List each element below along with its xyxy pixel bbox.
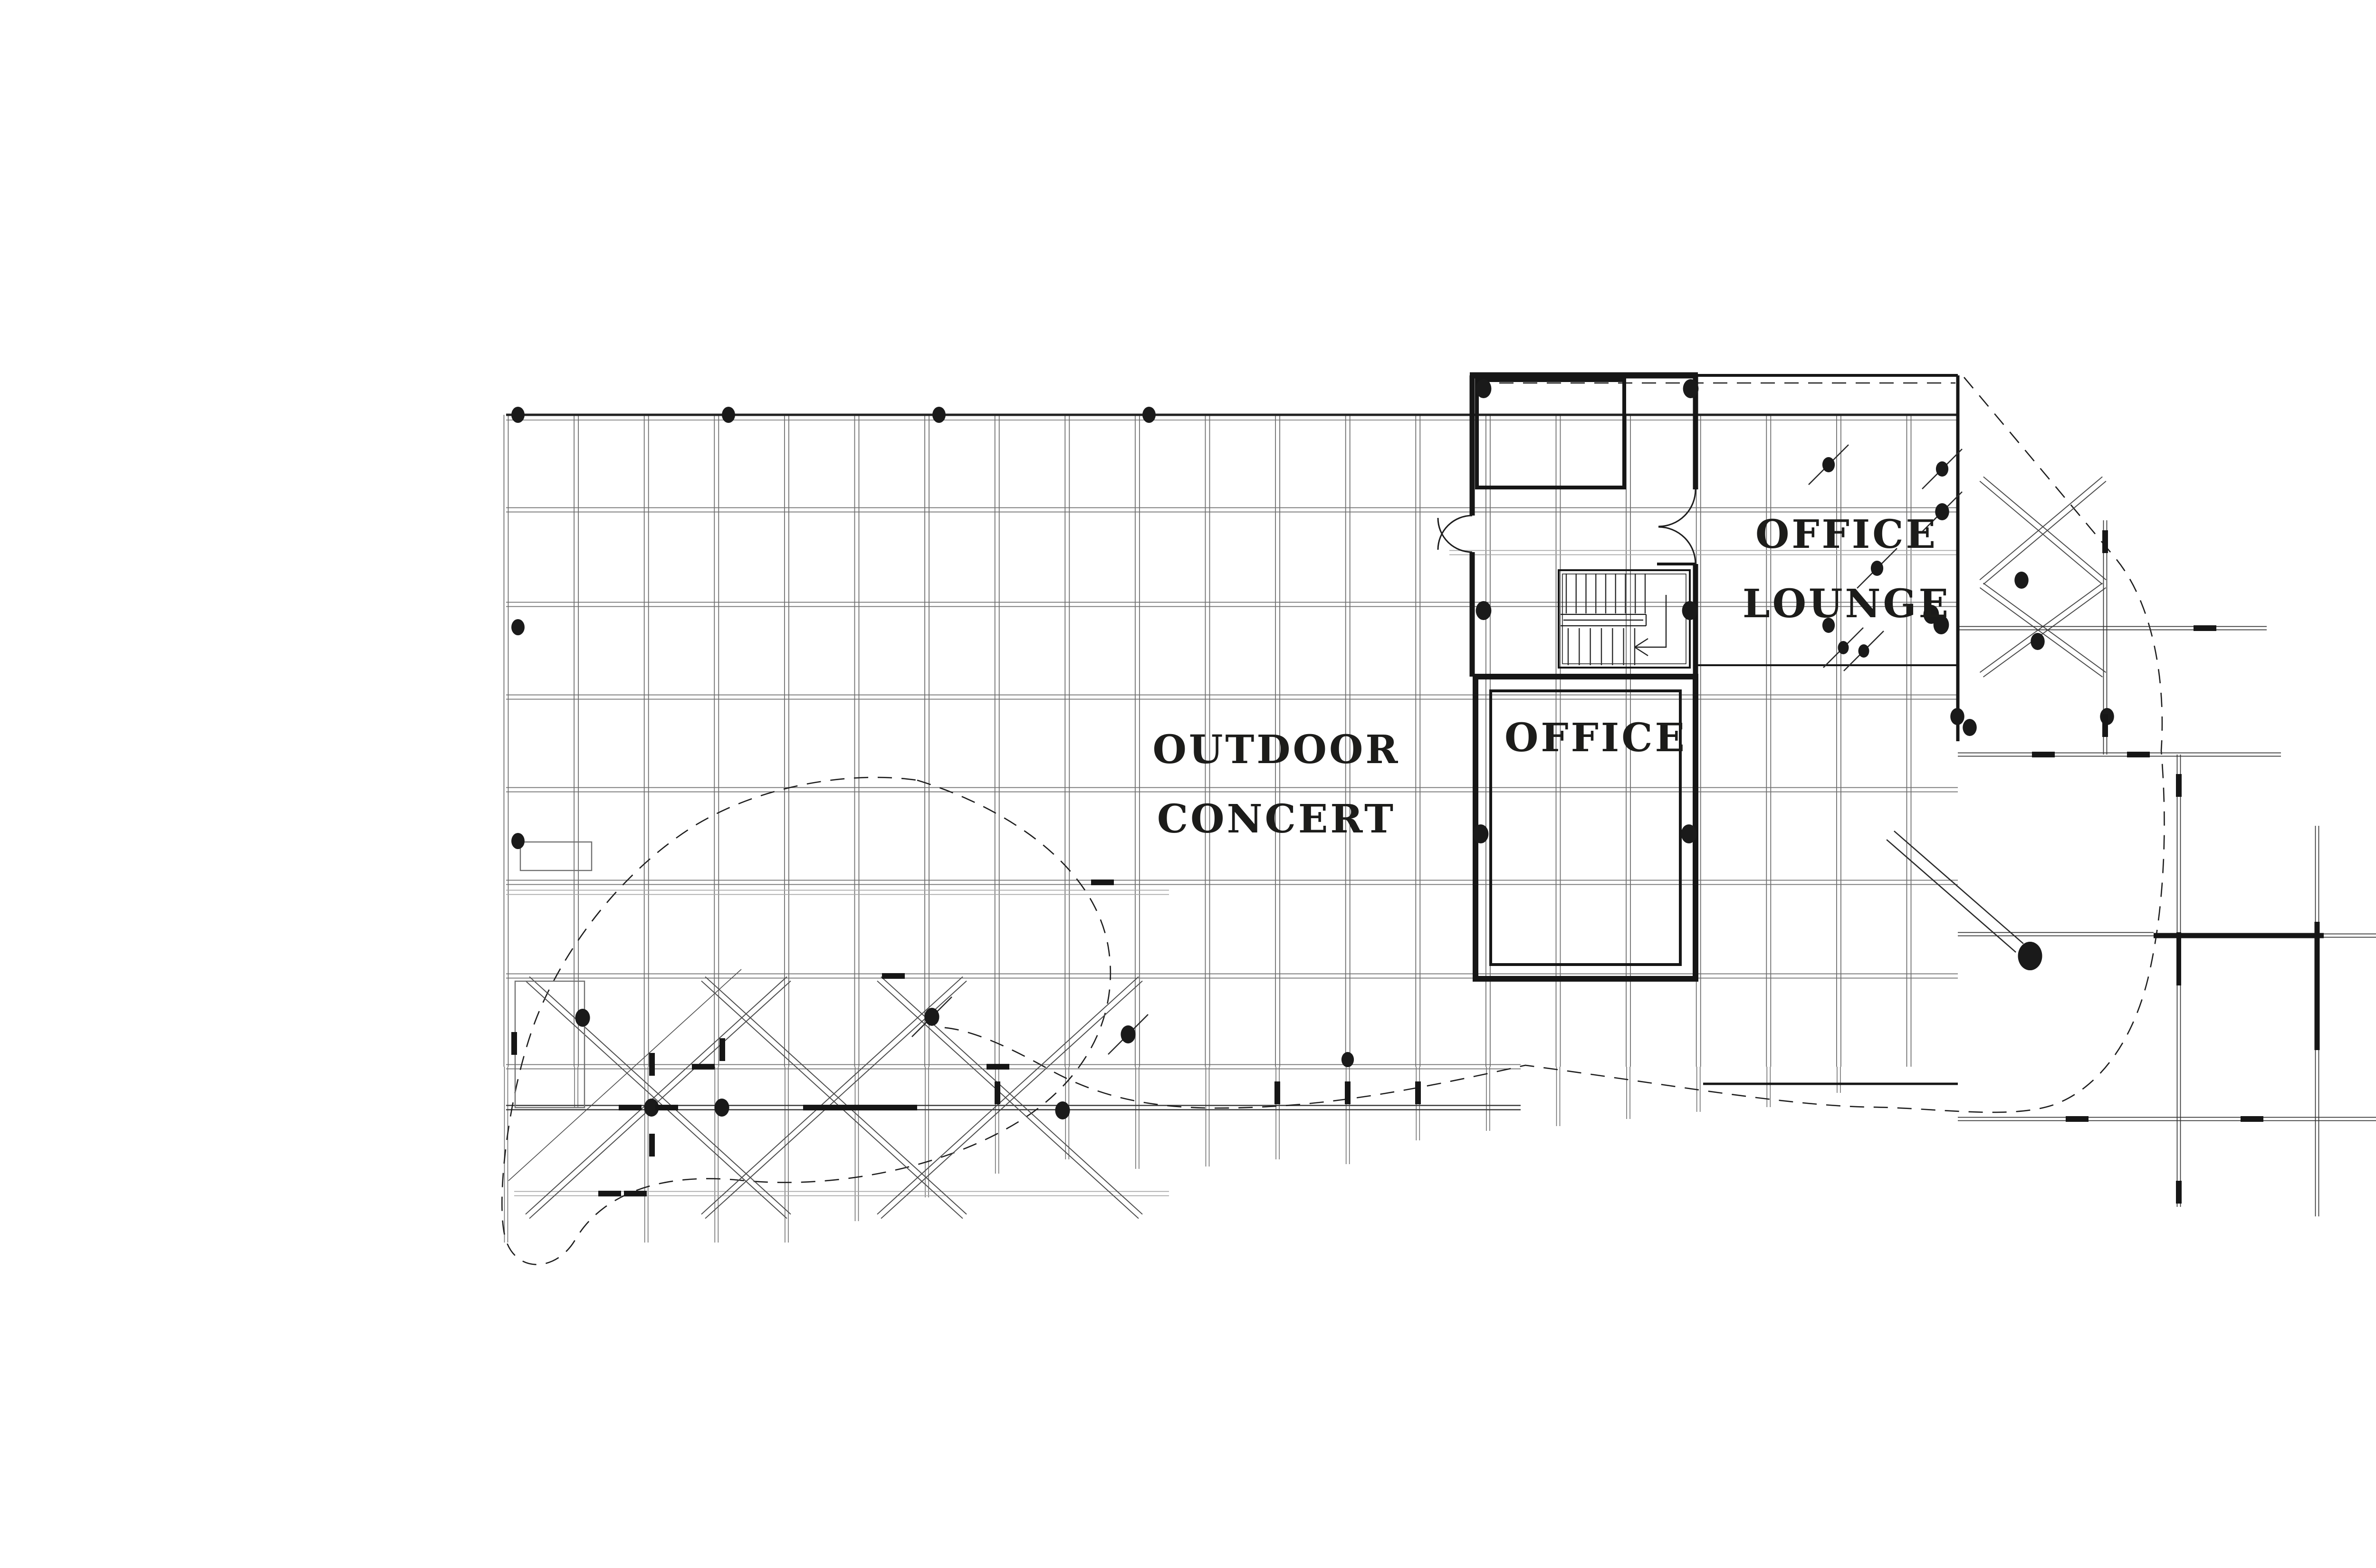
label-office-lounge: OFFICELOUNGE — [1690, 500, 2003, 639]
label-outdoor-line1: OUTDOOR — [1152, 727, 1400, 773]
label-lounge-line1: OFFICE — [1755, 512, 1938, 557]
label-lounge-line2: LOUNGE — [1743, 581, 1951, 627]
floor-plan-page: OUTDOORCONCERT OFFICE OFFICELOUNGE 3RD F… — [0, 0, 2376, 1568]
label-office: OFFICE — [1491, 703, 1700, 773]
label-outdoor-concert: OUTDOORCONCERT — [1110, 715, 1443, 854]
label-outdoor-line2: CONCERT — [1157, 796, 1396, 842]
